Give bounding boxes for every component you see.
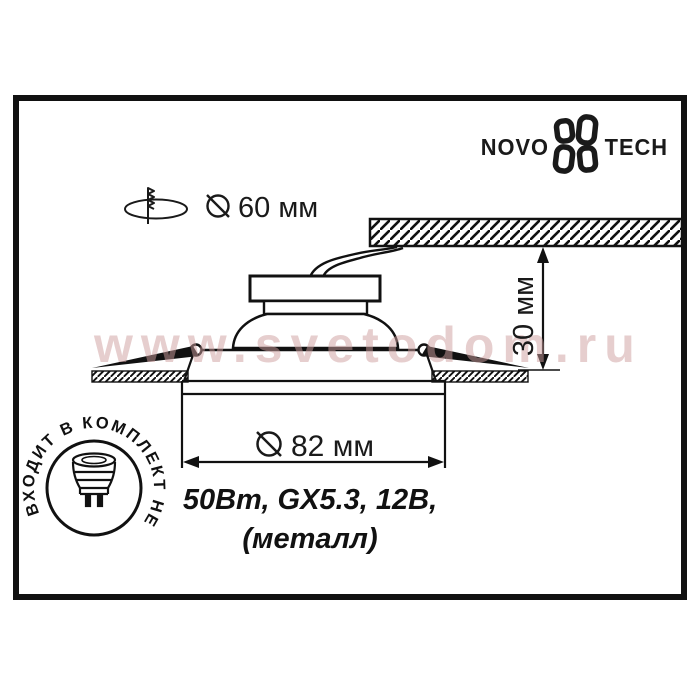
- brand-logo: NOVO TECH: [479, 116, 669, 178]
- drill-hole-icon: [122, 184, 192, 233]
- spec-line-1: 50Вт, GX5.3, 12В,: [150, 481, 470, 520]
- diameter-icon: [204, 192, 232, 225]
- logo-text-right: TECH: [604, 134, 667, 161]
- diameter-value: 82 мм: [291, 430, 374, 464]
- diameter-icon: [254, 429, 284, 464]
- watermark: www.svetodom.ru: [94, 316, 643, 374]
- spec-caption: 50Вт, GX5.3, 12В, (металл): [150, 481, 470, 559]
- terminal-box: [250, 276, 380, 314]
- logo-text-left: NOVO: [481, 134, 549, 161]
- diameter-82-label: 82 мм: [254, 429, 374, 464]
- cutout-note: 60 мм: [122, 186, 318, 230]
- supply-wire: [310, 247, 403, 277]
- flower-logo-icon: [552, 114, 602, 181]
- ceiling-slab: [370, 219, 682, 246]
- cutout-diameter-label: 60 мм: [238, 192, 318, 225]
- mr16-lamp-icon: [73, 454, 115, 507]
- spec-line-2: (металл): [150, 520, 470, 559]
- depth-30-label: 30 мм: [508, 254, 540, 378]
